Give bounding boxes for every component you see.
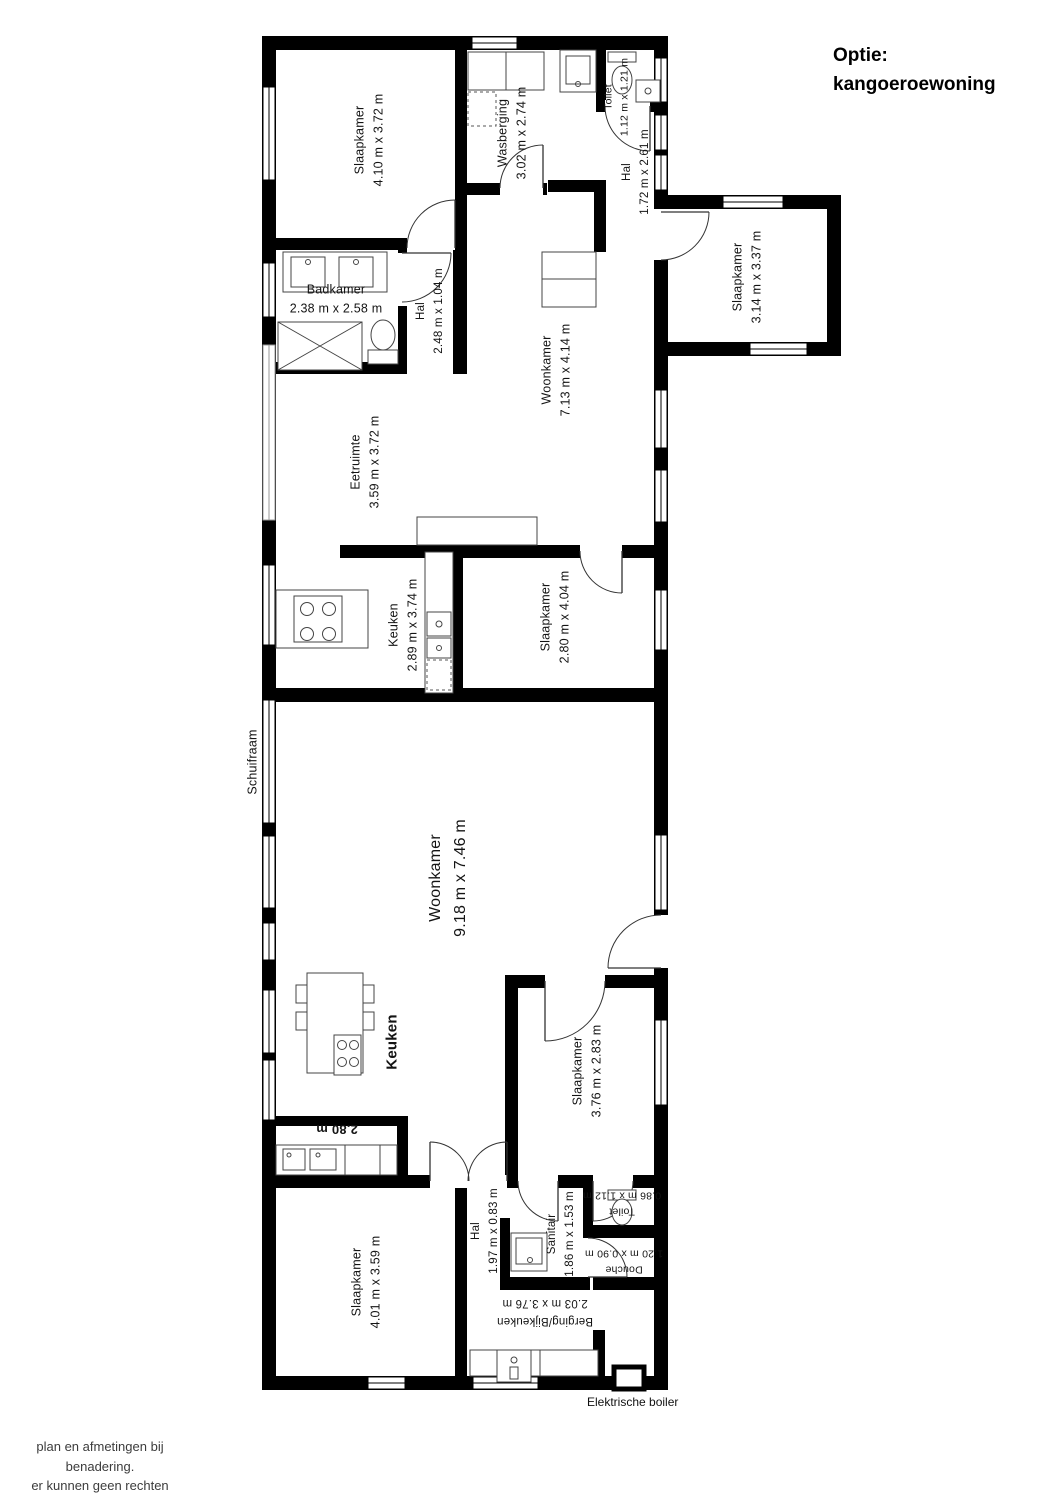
room-name: Wasberging bbox=[494, 99, 513, 167]
room-name: Hal bbox=[619, 163, 637, 181]
room-name: Hal bbox=[468, 1222, 486, 1240]
room-name: Keuken bbox=[380, 1014, 403, 1069]
room-label-toilet-beneden: Toilet 0.86 m x 1.12 m bbox=[583, 1187, 661, 1220]
room-label-woonkamer-beneden: Woonkamer 9.18 m x 7.46 m bbox=[424, 819, 474, 937]
room-dims: 1.72 m x 2.61 m bbox=[637, 129, 655, 214]
room-name: Woonkamer bbox=[538, 336, 557, 405]
room-name: Hal bbox=[413, 302, 431, 320]
disclaimer: plan en afmetingen bij benadering. er ku… bbox=[5, 1437, 195, 1500]
room-name: Slaapkamer bbox=[348, 1248, 367, 1317]
room-dims: 2.80 m x 4.04 m bbox=[556, 571, 575, 664]
plan-title: Optie: kangoeroewoning bbox=[833, 42, 996, 99]
room-dims: 2.89 m x 3.74 m bbox=[404, 579, 423, 672]
disclaimer-line: plan en afmetingen bij benadering. bbox=[5, 1437, 195, 1476]
room-label-hal-badkamer: Hal 2.48 m x 1.04 m bbox=[413, 268, 449, 353]
room-dims: 1.86 m x 1.53 m bbox=[562, 1191, 580, 1276]
room-dims: 2.48 m x 1.04 m bbox=[431, 268, 449, 353]
room-name: Slaapkamer bbox=[351, 106, 370, 175]
room-dims: 0.86 m x 1.12 m bbox=[583, 1187, 661, 1203]
room-dims: 3.14 m x 3.37 m bbox=[748, 231, 767, 324]
room-name: Douche bbox=[605, 1261, 642, 1277]
room-name: Berging/Bijkeuken bbox=[497, 1311, 593, 1329]
floorplan-drawing bbox=[0, 0, 1058, 1500]
room-name: Toilet bbox=[609, 1203, 635, 1219]
counter-width-value: 2.80 m bbox=[316, 1119, 358, 1139]
room-label-badkamer: Badkamer 2.38 m x 2.58 m bbox=[290, 281, 383, 320]
room-dims: 9.18 m x 7.46 m bbox=[449, 819, 474, 937]
room-label-keuken-boven: Keuken 2.89 m x 3.74 m bbox=[385, 579, 424, 672]
disclaimer-line: er kunnen geen rechten ontleend bbox=[5, 1476, 195, 1500]
room-label-slaapkamer-1: Slaapkamer 4.10 m x 3.72 m bbox=[351, 94, 390, 187]
room-label-slaapkamer-3: Slaapkamer 2.80 m x 4.04 m bbox=[537, 571, 576, 664]
room-dims: 2.03 m x 3.76 m bbox=[502, 1293, 587, 1311]
room-label-slaapkamer-5: Slaapkamer 4.01 m x 3.59 m bbox=[348, 1236, 387, 1329]
plan-title-line2: kangoeroewoning bbox=[833, 71, 996, 100]
room-name: Woonkamer bbox=[424, 834, 449, 922]
room-name: Toilet bbox=[601, 84, 617, 110]
room-dims: 1.97 m x 0.83 m bbox=[486, 1188, 504, 1273]
room-label-douche: Douche 1.20 m x 0.90 m bbox=[585, 1245, 663, 1278]
room-dims: 3.02 m x 2.74 m bbox=[513, 87, 532, 180]
room-label-wasberging: Wasberging 3.02 m x 2.74 m bbox=[494, 87, 533, 180]
room-dims: 2.38 m x 2.58 m bbox=[290, 300, 383, 319]
room-name: Sanitair bbox=[544, 1214, 562, 1255]
room-dims: 3.76 m x 2.83 m bbox=[588, 1025, 607, 1118]
room-dims: 1.20 m x 0.90 m bbox=[585, 1245, 663, 1261]
room-dims: 4.10 m x 3.72 m bbox=[370, 94, 389, 187]
room-name: Slaapkamer bbox=[537, 583, 556, 652]
room-name: Badkamer bbox=[307, 281, 366, 300]
boiler-label: Elektrische boiler bbox=[587, 1395, 678, 1409]
room-label-woonkamer-boven: Woonkamer 7.13 m x 4.14 m bbox=[538, 324, 577, 417]
counter-width-label: 2.80 m bbox=[316, 1119, 358, 1139]
room-label-hal-beneden: Hal 1.97 m x 0.83 m bbox=[468, 1188, 504, 1273]
room-label-slaapkamer-2: Slaapkamer 3.14 m x 3.37 m bbox=[729, 231, 768, 324]
schuifraam-label: Schuifraam bbox=[243, 729, 262, 794]
room-label-hal-boven: Hal 1.72 m x 2.61 m bbox=[619, 129, 655, 214]
room-name: Keuken bbox=[385, 603, 404, 647]
plan-title-line1: Optie: bbox=[833, 42, 996, 71]
room-name: Slaapkamer bbox=[569, 1037, 588, 1106]
room-dims: 7.13 m x 4.14 m bbox=[557, 324, 576, 417]
boiler-box bbox=[614, 1367, 644, 1389]
room-label-keuken-beneden: Keuken bbox=[380, 1014, 403, 1069]
room-label-slaapkamer-4: Slaapkamer 3.76 m x 2.83 m bbox=[569, 1025, 608, 1118]
schuifraam-text: Schuifraam bbox=[243, 729, 262, 794]
room-label-eetruimte: Eetruimte 3.59 m x 3.72 m bbox=[347, 416, 386, 509]
room-dims: 4.01 m x 3.59 m bbox=[367, 1236, 386, 1329]
room-label-toilet-boven: Toilet 1.12 m x 1.21 m bbox=[601, 58, 634, 136]
room-name: Slaapkamer bbox=[729, 243, 748, 312]
room-dims: 3.59 m x 3.72 m bbox=[366, 416, 385, 509]
room-dims: 1.12 m x 1.21 m bbox=[617, 58, 633, 136]
room-label-berging: Berging/Bijkeuken 2.03 m x 3.76 m bbox=[497, 1293, 593, 1329]
room-name: Eetruimte bbox=[347, 434, 366, 489]
floorplan: Optie: kangoeroewoning Slaapkamer 4.10 m… bbox=[0, 0, 1058, 1500]
room-label-sanitair: Sanitair 1.86 m x 1.53 m bbox=[544, 1191, 580, 1276]
